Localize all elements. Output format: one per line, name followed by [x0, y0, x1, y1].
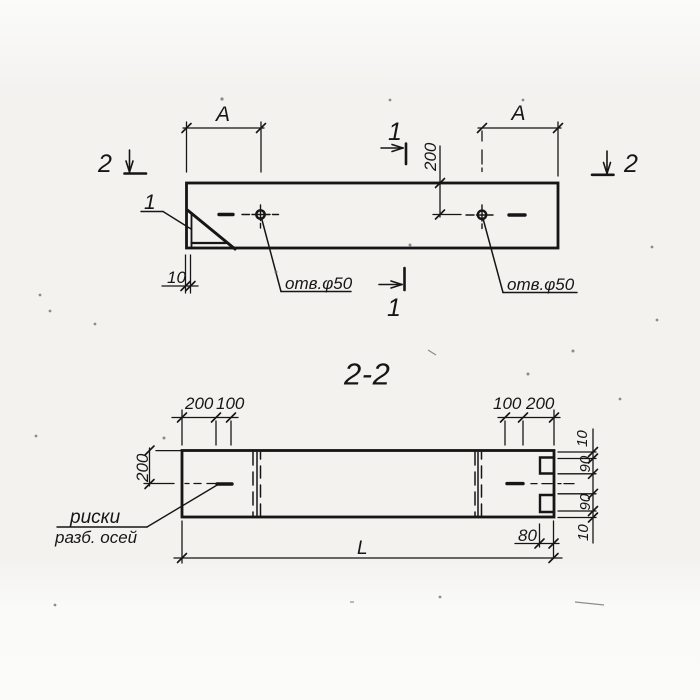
svg-text:10: 10 [167, 268, 186, 287]
svg-text:90: 90 [577, 493, 594, 510]
svg-text:L: L [357, 538, 368, 559]
svg-text:1: 1 [387, 294, 401, 322]
svg-text:1: 1 [388, 118, 402, 146]
svg-text:разб. осей: разб. осей [54, 528, 138, 547]
svg-text:A: A [214, 103, 230, 126]
svg-text:отв.φ50: отв.φ50 [507, 275, 575, 294]
svg-text:200: 200 [525, 394, 555, 413]
svg-text:отв.φ50: отв.φ50 [285, 274, 353, 293]
svg-text:200: 200 [133, 453, 152, 483]
svg-text:2: 2 [623, 150, 638, 178]
svg-text:100: 100 [493, 394, 522, 413]
svg-text:2-2: 2-2 [343, 357, 390, 392]
svg-text:100: 100 [216, 394, 245, 413]
svg-text:10: 10 [574, 430, 591, 447]
svg-text:A: A [510, 102, 526, 125]
svg-text:80: 80 [518, 526, 537, 545]
svg-text:1: 1 [144, 191, 156, 214]
svg-text:200: 200 [184, 394, 214, 413]
svg-text:2: 2 [97, 150, 112, 178]
svg-text:риски: риски [69, 507, 121, 528]
svg-text:10: 10 [575, 524, 592, 541]
svg-text:90: 90 [577, 455, 594, 472]
svg-text:200: 200 [421, 142, 440, 172]
